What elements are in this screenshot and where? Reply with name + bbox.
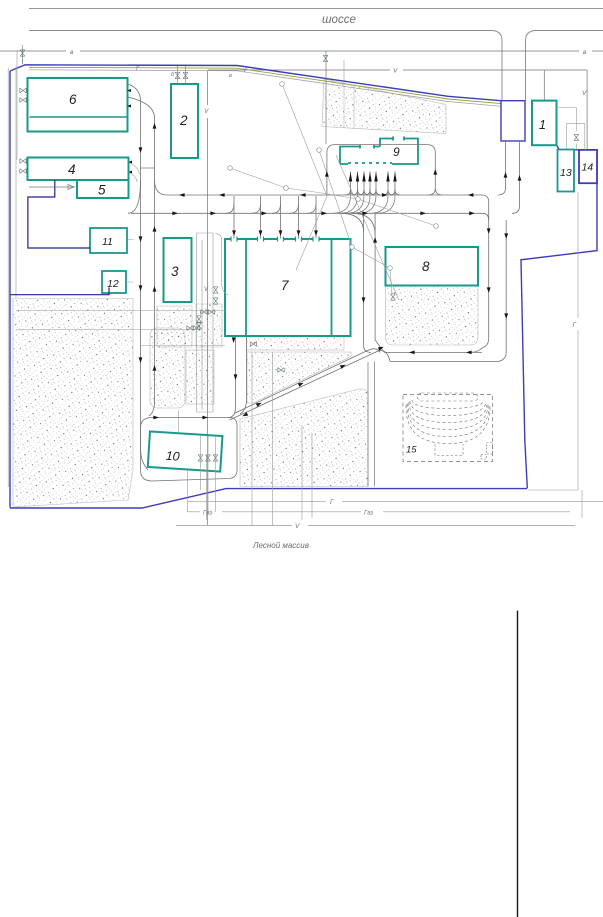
svg-text:14: 14 <box>582 162 594 174</box>
svg-text:в: в <box>583 49 587 56</box>
svg-text:5: 5 <box>98 183 106 198</box>
svg-text:15: 15 <box>406 445 417 456</box>
svg-text:10: 10 <box>165 449 180 464</box>
svg-text:в: в <box>70 49 74 56</box>
svg-text:Газ: Газ <box>203 511 212 517</box>
svg-text:8: 8 <box>422 259 430 274</box>
svg-text:7: 7 <box>281 278 289 293</box>
svg-text:шоссе: шоссе <box>322 14 356 26</box>
svg-text:V: V <box>204 287 209 293</box>
svg-text:Г: Г <box>573 322 577 329</box>
svg-text:V: V <box>393 68 398 75</box>
svg-text:Лесной массив: Лесной массив <box>252 541 309 550</box>
svg-text:2: 2 <box>179 113 188 128</box>
svg-text:13: 13 <box>560 167 572 179</box>
svg-text:Газ: Газ <box>364 511 373 517</box>
svg-text:V: V <box>204 108 209 115</box>
svg-text:11: 11 <box>102 236 113 248</box>
svg-text:V: V <box>295 523 300 530</box>
svg-text:4: 4 <box>68 162 76 177</box>
svg-text:в: в <box>229 73 232 79</box>
svg-text:Г: Г <box>330 499 334 506</box>
svg-text:3: 3 <box>171 264 179 279</box>
svg-text:Г: Г <box>136 66 140 72</box>
svg-text:V: V <box>582 90 587 97</box>
svg-text:1: 1 <box>539 118 546 132</box>
svg-text:9: 9 <box>393 145 400 159</box>
svg-text:6: 6 <box>69 92 77 107</box>
svg-text:б: б <box>171 72 175 78</box>
